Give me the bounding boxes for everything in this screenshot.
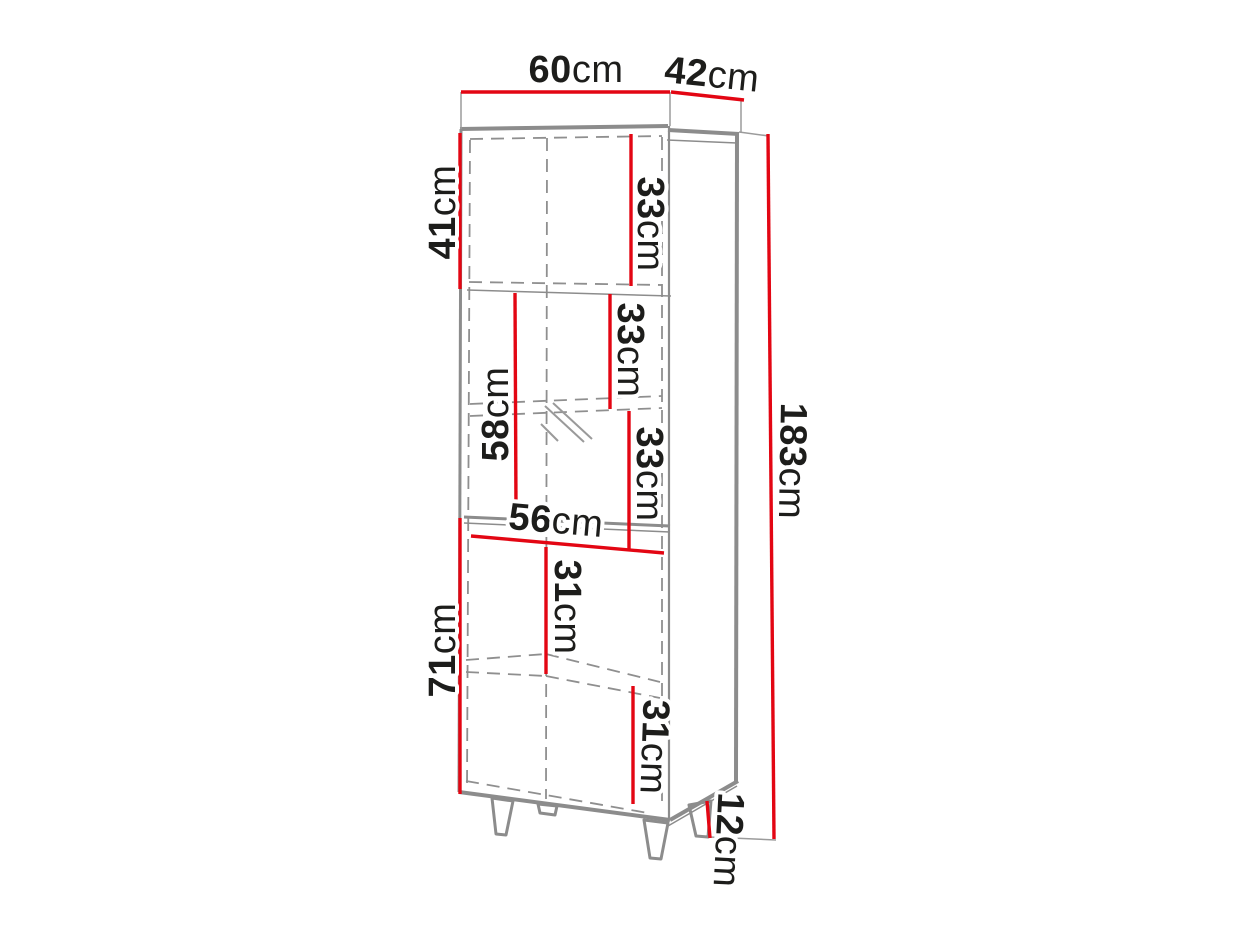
lower-shelf-front-dashed-edge-right bbox=[546, 676, 660, 698]
cabinet-solid-edges bbox=[459, 126, 739, 826]
dim-label-shelf-upper-mid: 33cm bbox=[609, 303, 651, 398]
dimension-labels: 60cm 42cm 41cm 33cm 33cm 58cm 33cm 56cm … bbox=[422, 49, 814, 889]
dim-label-shelf-lower-mid: 33cm bbox=[628, 427, 670, 522]
door-top-dashed-edge bbox=[470, 136, 662, 139]
dimension-lines bbox=[460, 92, 774, 839]
dim-label-inner-width: 56cm bbox=[507, 496, 605, 546]
glass-reflection-icon bbox=[541, 403, 592, 442]
top-right-edge bbox=[668, 130, 739, 134]
dimension-diagram: 60cm 42cm 41cm 33cm 33cm 58cm 33cm 56cm … bbox=[0, 0, 1248, 936]
dim-label-shelf-lower: 31cm bbox=[546, 560, 588, 655]
lower-shelf-front-dashed-edge-left bbox=[466, 672, 546, 676]
front-right-leg bbox=[644, 820, 668, 859]
lower-shelf-dashed-edge-left bbox=[466, 654, 546, 660]
door-split-dashed-edge bbox=[546, 138, 547, 799]
extension-lines bbox=[461, 92, 776, 840]
lower-shelf-dashed-edge-right bbox=[546, 654, 660, 682]
upper-shelf-dashed-edge bbox=[469, 282, 662, 285]
door-left-dashed-edge bbox=[467, 140, 470, 789]
bottom-front-edge bbox=[459, 792, 670, 820]
upper-divider-seam bbox=[467, 290, 671, 296]
dim-label-lower-section: 71cm bbox=[422, 603, 464, 698]
top-right-inner-edge bbox=[667, 140, 737, 143]
top-front-edge bbox=[460, 126, 668, 129]
dim-label-leg-height: 12cm bbox=[705, 791, 752, 888]
dim-label-width: 60cm bbox=[529, 49, 624, 91]
dim-label-total-height: 183cm bbox=[770, 402, 814, 519]
dim-label-upper-section: 41cm bbox=[422, 165, 464, 260]
dim-label-shelf-top: 33cm bbox=[629, 177, 671, 272]
dim-label-shelf-bottom: 31cm bbox=[631, 699, 676, 795]
right-back-edge bbox=[736, 133, 737, 781]
cabinet-dimension-drawing: 60cm 42cm 41cm 33cm 33cm 58cm 33cm 56cm … bbox=[0, 0, 1248, 936]
front-left-leg bbox=[492, 798, 513, 835]
cabinet-legs bbox=[492, 798, 711, 859]
dim-label-display-section: 58cm bbox=[475, 367, 517, 462]
total-height-extension-top bbox=[739, 132, 769, 136]
